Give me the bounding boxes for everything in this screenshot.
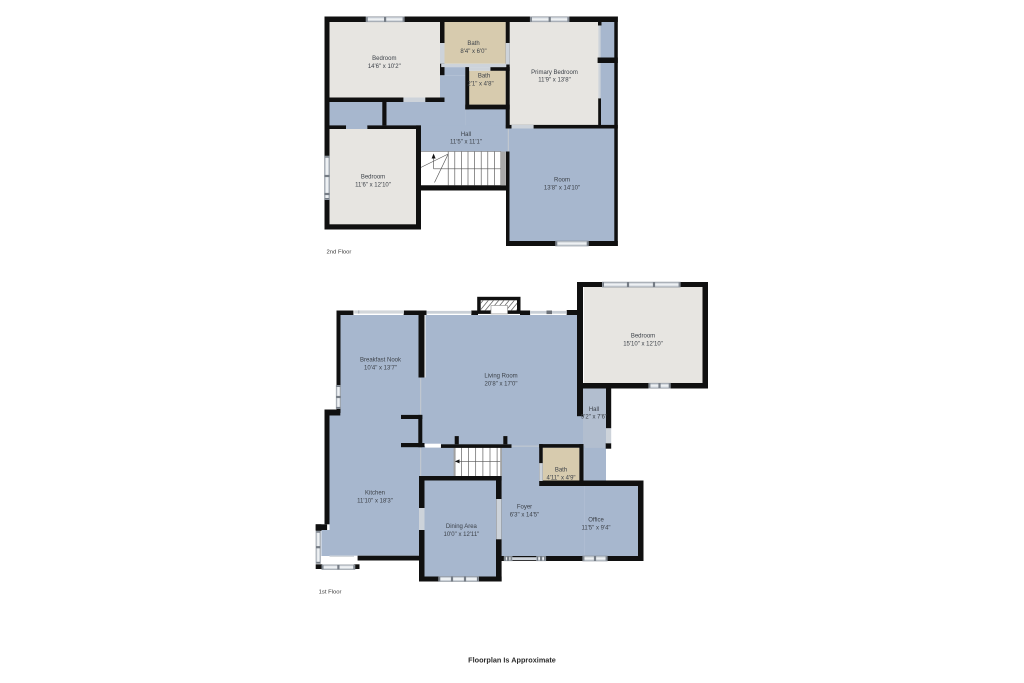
svg-text:Bath: Bath	[467, 41, 479, 47]
svg-text:20'8" x 17'0": 20'8" x 17'0"	[485, 381, 518, 387]
svg-text:6'3" x 14'5": 6'3" x 14'5"	[510, 512, 540, 518]
svg-text:10'0" x 12'11": 10'0" x 12'11"	[443, 532, 479, 538]
svg-text:Breakfast Nook: Breakfast Nook	[360, 358, 402, 364]
svg-text:Bedroom: Bedroom	[631, 334, 655, 340]
svg-text:Bath: Bath	[555, 468, 567, 474]
svg-text:Hall: Hall	[461, 132, 471, 138]
svg-text:11'10" x 18'3": 11'10" x 18'3"	[357, 498, 393, 504]
svg-text:Bedroom: Bedroom	[372, 56, 396, 62]
svg-text:11'6" x 12'10": 11'6" x 12'10"	[355, 182, 391, 188]
svg-text:11'5" x 11'1": 11'5" x 11'1"	[450, 140, 482, 146]
svg-text:4'11" x 4'9": 4'11" x 4'9"	[546, 475, 575, 481]
svg-text:11'5" x 9'4": 11'5" x 9'4"	[581, 525, 610, 531]
svg-text:Bedroom: Bedroom	[361, 175, 385, 181]
svg-text:Office: Office	[588, 518, 604, 524]
svg-text:8'4" x 6'0": 8'4" x 6'0"	[460, 49, 486, 55]
svg-text:14'6" x 10'2": 14'6" x 10'2"	[368, 64, 401, 70]
svg-text:Primary Bedroom: Primary Bedroom	[531, 70, 578, 76]
svg-text:9'2" x 7'6": 9'2" x 7'6"	[581, 415, 607, 421]
svg-text:10'4" x 13'7": 10'4" x 13'7"	[364, 366, 397, 372]
svg-text:Living Room: Living Room	[484, 374, 517, 380]
svg-text:1st Floor: 1st Floor	[319, 590, 342, 596]
svg-text:15'10" x 12'10": 15'10" x 12'10"	[623, 341, 663, 347]
svg-text:2nd Floor: 2nd Floor	[327, 250, 352, 256]
svg-text:Floorplan Is Approximate: Floorplan Is Approximate	[468, 655, 556, 664]
svg-text:Bath: Bath	[478, 74, 490, 80]
svg-text:Foyer: Foyer	[517, 505, 532, 511]
svg-text:Room: Room	[554, 178, 570, 184]
svg-text:13'8" x 14'10": 13'8" x 14'10"	[544, 185, 580, 191]
svg-text:Hall: Hall	[589, 407, 599, 413]
svg-text:Kitchen: Kitchen	[365, 491, 385, 497]
svg-text:11'9" x 13'8": 11'9" x 13'8"	[538, 78, 570, 84]
svg-text:Dining Area: Dining Area	[446, 524, 478, 530]
svg-text:2'1" x 4'8": 2'1" x 4'8"	[467, 81, 493, 87]
